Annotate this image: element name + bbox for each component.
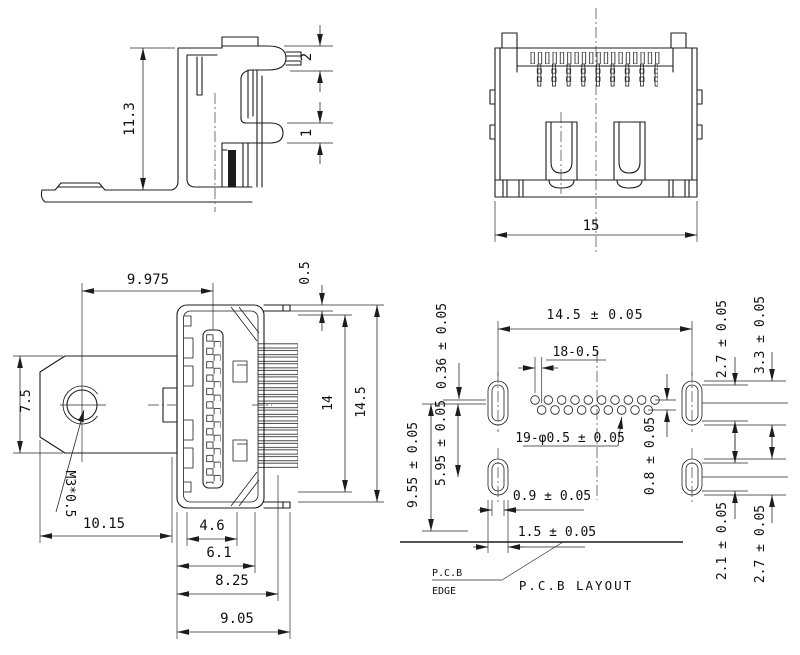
pcb-edge-label-1: P.C.B <box>432 568 462 579</box>
dim-slot-width-inner: 0.9 ± 0.05 <box>513 489 591 504</box>
pcb-layout-view: 14.5 ± 0.05 18-0.5 0.36 ± 0.05 2.7 ± 0.0… <box>400 296 788 597</box>
thread-callout: M3*0.5 <box>62 471 77 518</box>
side-view-section-fill <box>228 150 236 187</box>
solder-pin-comb <box>258 343 298 469</box>
dim-pin-pitch: 18-0.5 <box>553 345 600 360</box>
shell-latches <box>184 307 259 506</box>
pin-teeth-row <box>529 52 661 64</box>
pcb-layout-title: P.C.B LAYOUT <box>519 578 633 593</box>
dim-slot-inner-bottom: 2.1 ± 0.05 <box>715 502 730 580</box>
mounting-flange-outline <box>40 356 177 453</box>
dim-slot-outer-bottom: 2.7 ± 0.05 <box>753 505 768 583</box>
shell-inner <box>184 311 259 502</box>
dim-tongue-width: 6.1 <box>206 545 231 561</box>
dim-edge-distance: 9.55 ± 0.05 <box>406 422 421 508</box>
pin-hole-field <box>531 396 660 415</box>
pcb-centerlines <box>498 352 692 505</box>
side-view-outline <box>41 37 301 202</box>
dim-shell-step: 0.5 <box>298 261 313 284</box>
tongue-contacts <box>206 334 221 484</box>
dim-flange-height: 7.5 <box>19 389 34 412</box>
dim-hole-callout: 19-φ0.5 ± 0.05 <box>515 431 625 446</box>
dim-shell-width: 8.25 <box>215 573 249 589</box>
dim-lower-pin: 1 <box>299 129 315 137</box>
pcb-edge-label-2: EDGE <box>432 586 456 597</box>
front-view-centerlines <box>561 8 596 252</box>
hole-crosshair <box>60 283 106 462</box>
dim-slot-span: 14.5 ± 0.05 <box>546 308 643 323</box>
technical-drawing-sheet: 11.3 2 1 15 <box>0 0 800 655</box>
dim-slot-inner-top: 2.7 ± 0.05 <box>715 300 730 378</box>
dim-side-height: 11.3 <box>122 102 138 136</box>
dim-cavity-width: 4.6 <box>199 518 224 534</box>
dim-hole-to-center: 9.975 <box>127 272 169 288</box>
pin-tails-row <box>532 64 658 90</box>
front-view: 15 <box>490 8 702 252</box>
side-view-ext-lines <box>116 46 333 190</box>
side-view: 11.3 2 1 <box>41 25 333 212</box>
dim-upper-pin: 2 <box>299 53 315 61</box>
top-view: 9.975 0.5 7.5 M3*0.5 14 14.5 10.15 4.6 6… <box>13 261 384 639</box>
dim-body-height: 14 <box>321 395 336 411</box>
dim-front-width: 15 <box>583 218 600 234</box>
dim-slot-row-gap: 5.95 ± 0.05 <box>434 400 449 486</box>
drawing-canvas: 11.3 2 1 15 <box>0 0 800 655</box>
dim-overall-height: 14.5 <box>354 386 369 417</box>
dim-row-stagger: 0.8 ± 0.05 <box>643 417 658 495</box>
dim-slot-outer-top: 3.3 ± 0.05 <box>753 296 768 374</box>
dim-slot-width-outer: 1.5 ± 0.05 <box>518 525 596 540</box>
dim-flange-length: 10.15 <box>83 516 125 532</box>
dim-overall-width: 9.05 <box>220 611 254 627</box>
dim-row-offset: 0.36 ± 0.05 <box>435 303 450 389</box>
